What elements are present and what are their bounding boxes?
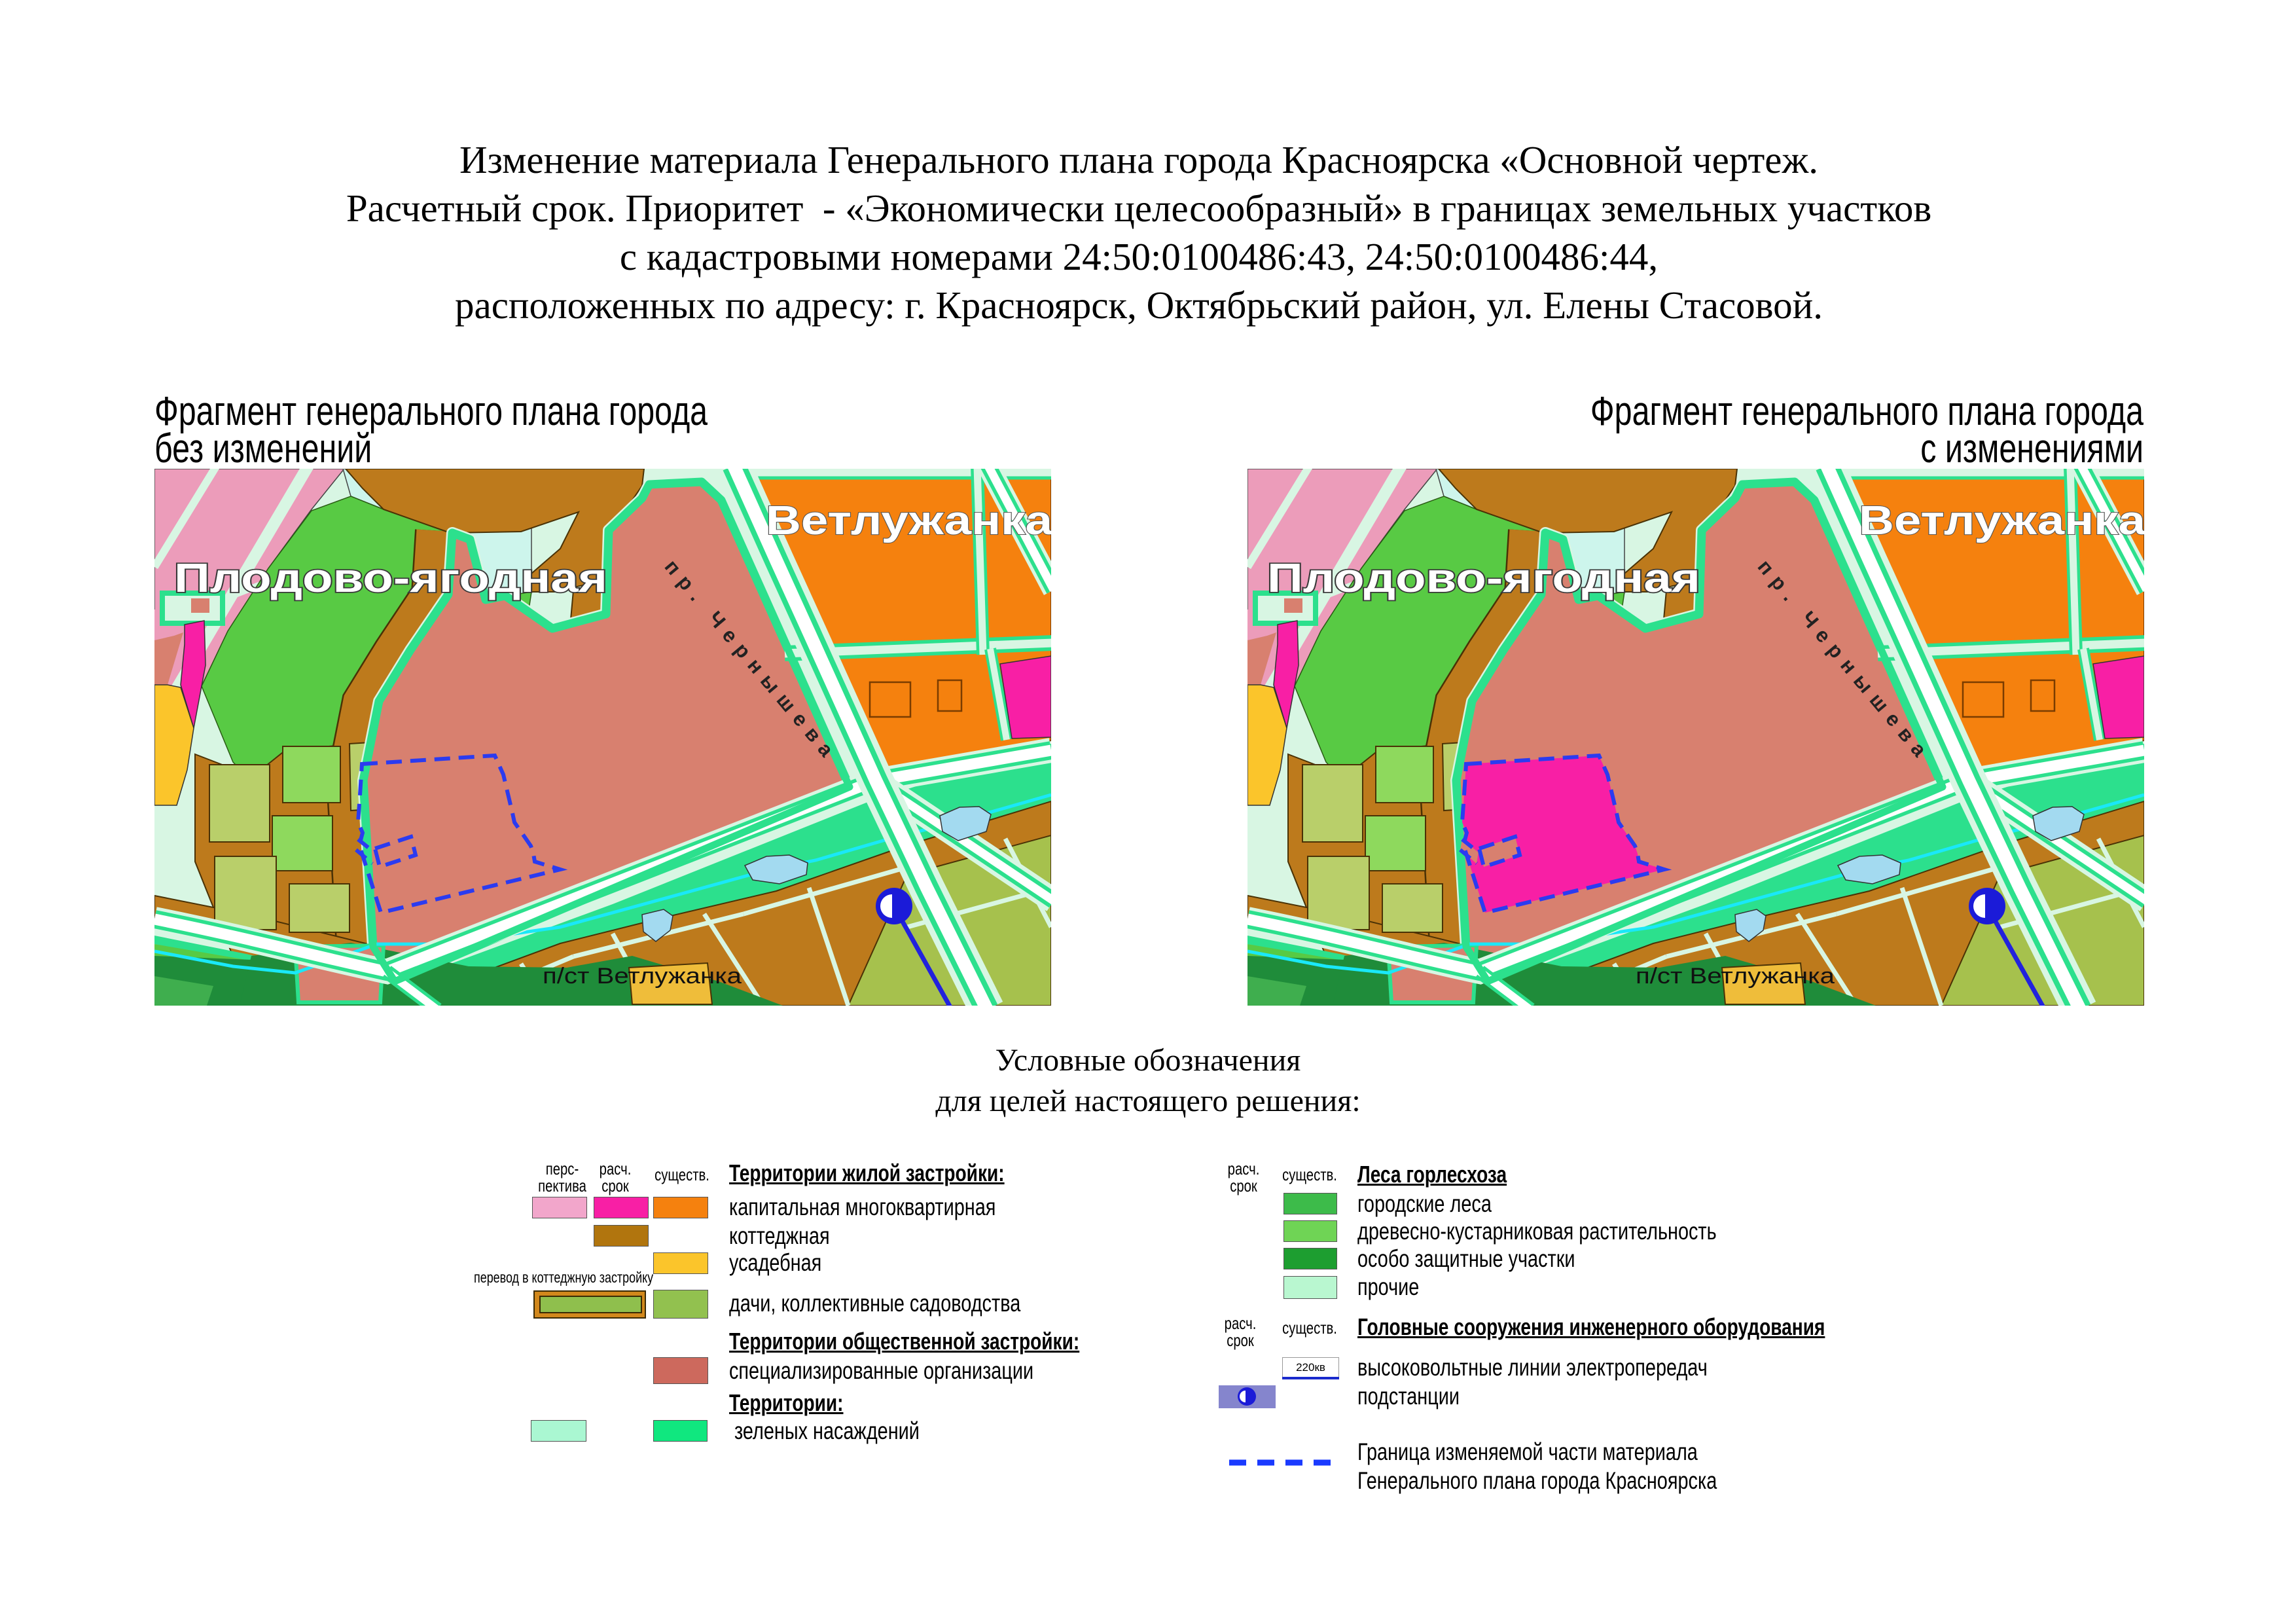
- svg-text:п/ст Ветлужанка: п/ст Ветлужанка: [543, 964, 742, 989]
- svg-text:п/ст Ветлужанка: п/ст Ветлужанка: [1636, 964, 1835, 989]
- svg-text:Плодово-ягодная: Плодово-ягодная: [174, 556, 607, 601]
- svg-text:Ветлужанка: Ветлужанка: [1859, 498, 2144, 543]
- svg-text:Ветлужанка: Ветлужанка: [766, 498, 1051, 543]
- svg-text:Плодово-ягодная: Плодово-ягодная: [1267, 556, 1700, 601]
